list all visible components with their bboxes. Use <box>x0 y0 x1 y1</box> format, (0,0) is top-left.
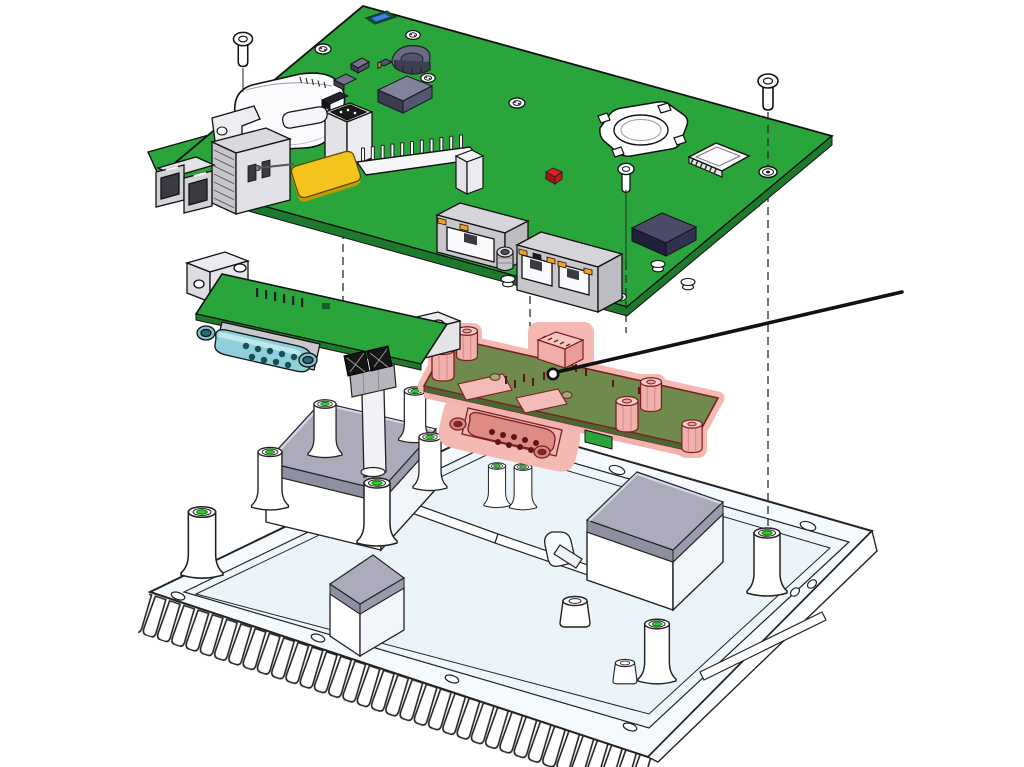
callout-target-dot <box>548 369 558 379</box>
mounting-screw-left <box>234 32 253 92</box>
lc-fiber-connector <box>156 157 214 213</box>
main-board-assembly <box>148 6 832 316</box>
rf-connector <box>497 247 513 271</box>
exploded-assembly-diagram <box>0 0 1024 767</box>
